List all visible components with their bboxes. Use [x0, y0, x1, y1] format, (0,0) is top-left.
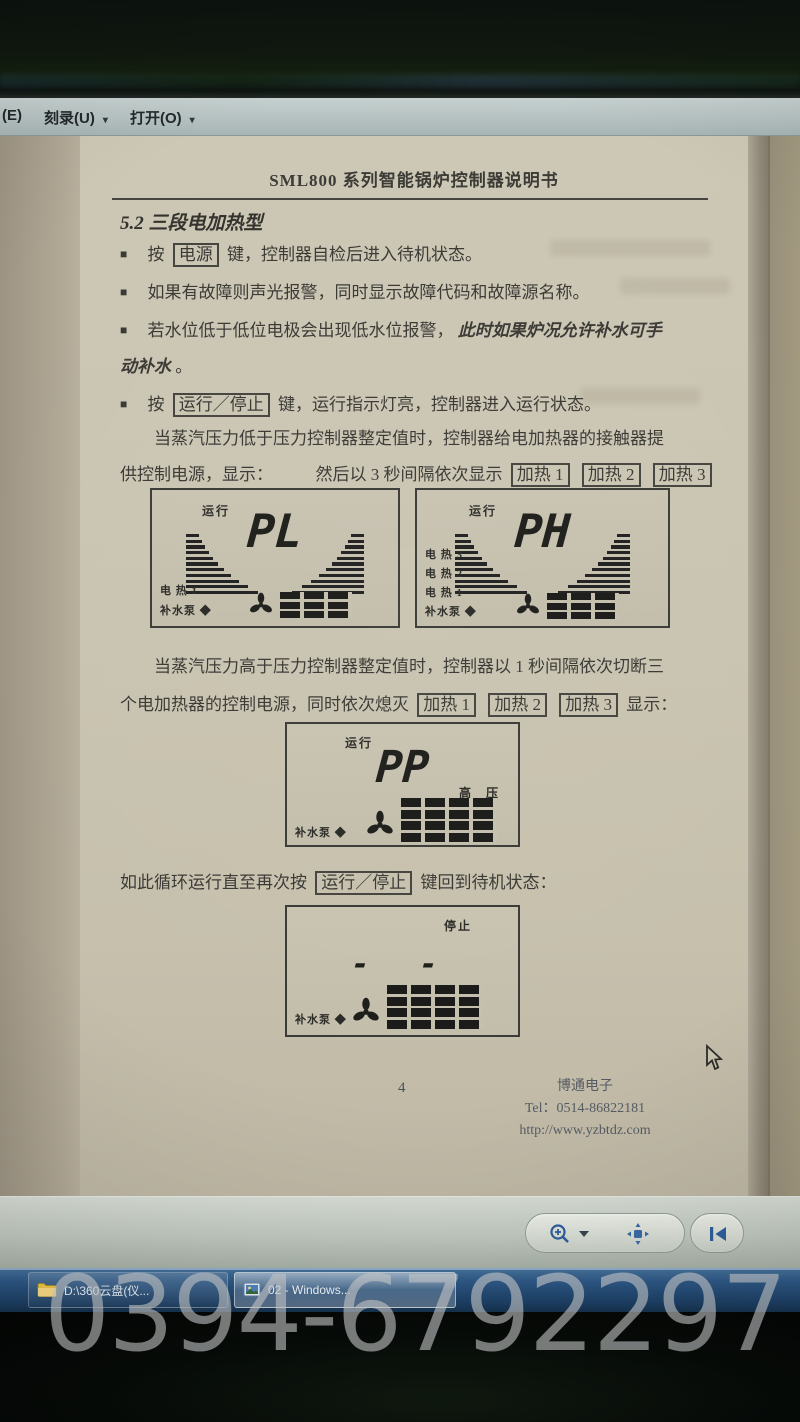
photo-viewer-canvas: SML800 系列智能锅炉控制器说明书 5.2 三段电加热型 ■ 按 电源 键，… — [0, 136, 800, 1196]
bullet-item-fault: ■ 如果有故障则声光报警，同时显示故障代码和故障源名称。 — [120, 278, 590, 303]
menu-bar: (E) 刻录(U)▾ 打开(O)▾ — [0, 98, 800, 136]
chevron-down-icon: ▾ — [190, 115, 195, 126]
key-power: 电源 — [173, 243, 219, 267]
lcd-bargraph-right — [292, 534, 364, 594]
bullet-marker: ■ — [120, 323, 127, 338]
lcd-panel-pl: 运行 PL 电 热 1 补水泵 ◆ — [150, 488, 400, 628]
lcd-label-feed-pump: 补水泵 ◆ — [295, 824, 347, 840]
lcd-panel-ph: 运行 PH 电 热 3 电 热 2 电 热 1 补水泵 ◆ — [415, 488, 670, 628]
title-rule — [112, 198, 708, 200]
lcd-label-feed-pump: 补水泵 ◆ — [295, 1011, 347, 1027]
paragraph-text: 显示： — [626, 695, 677, 714]
lcd-burner-bars-icon — [401, 798, 497, 844]
key-heat3: 加热 3 — [559, 693, 618, 717]
paragraph-text: 供控制电源，显示： — [120, 465, 273, 484]
page-bleed-through — [620, 278, 730, 294]
paragraph-low-pressure-line2: 供控制电源，显示： 然后以 3 秒间隔依次显示 加热 1 加热 2 加热 3 — [120, 460, 716, 487]
key-run-stop: 运行／停止 — [315, 871, 412, 895]
lcd-label-heater1: 电 热 1 — [425, 584, 463, 600]
fan-icon — [515, 593, 541, 619]
paragraph-low-pressure-line1: 当蒸汽压力低于压力控制器整定值时，控制器给电加热器的接触器提 — [154, 424, 664, 449]
fan-icon — [248, 592, 274, 618]
lcd-status-stop: 停止 — [444, 917, 472, 934]
menu-item-burn-label: 刻录(U) — [44, 110, 95, 127]
company-tel: Tel：0514-86822181 — [440, 1098, 730, 1120]
previous-image-icon — [707, 1223, 729, 1245]
bullet-text: 按 — [148, 245, 165, 264]
bullet-text-italic: 此时如果炉况允许补水可手 — [458, 321, 662, 340]
lcd-label-heater3: 电 热 3 — [425, 546, 463, 562]
zoom-controls-group — [525, 1213, 685, 1253]
paragraph-text: 键回到待机状态： — [421, 873, 557, 892]
footer-company-block: 博通电子 Tel：0514-86822181 http://www.yzbtdz… — [440, 1076, 730, 1142]
key-heat2: 加热 2 — [488, 693, 547, 717]
lcd-burner-bars-icon — [547, 593, 619, 622]
company-name: 博通电子 — [440, 1076, 730, 1098]
lcd-burner-bars-icon — [387, 985, 483, 1031]
paragraph-text: 然后以 3 秒间隔依次显示 — [316, 465, 503, 484]
paper-edge-highlight — [748, 136, 768, 1196]
bullet-item-low-water-line2: 动补水 。 — [120, 352, 192, 377]
lcd-panel-pp: 运行 PP 高 压 补水泵 ◆ — [285, 722, 520, 847]
key-heat2: 加热 2 — [582, 463, 641, 487]
mouse-cursor — [702, 1044, 724, 1072]
chevron-down-icon: ▾ — [103, 115, 108, 126]
bullet-marker: ■ — [120, 397, 127, 412]
bullet-marker: ■ — [120, 285, 127, 300]
menu-item-partial[interactable]: (E) — [2, 107, 22, 124]
section-heading: 5.2 三段电加热型 — [120, 208, 263, 235]
bullet-item-power: ■ 按 电源 键，控制器自检后进入待机状态。 — [120, 240, 482, 267]
lcd-label-heater1: 电 热 1 — [160, 582, 198, 598]
fan-icon — [365, 810, 395, 840]
actual-size-icon[interactable] — [626, 1222, 650, 1246]
bullet-text: 如果有故障则声光报警，同时显示故障代码和故障源名称。 — [148, 283, 590, 302]
key-heat3: 加热 3 — [653, 463, 712, 487]
paragraph-text: 如此循环运行直至再次按 — [120, 873, 307, 892]
bullet-text: 。 — [175, 357, 192, 376]
bullet-text: 键，运行指示灯亮，控制器进入运行状态。 — [278, 395, 601, 414]
chevron-down-icon[interactable] — [578, 1230, 590, 1238]
menu-item-open[interactable]: 打开(O)▾ — [130, 107, 195, 128]
monitor-bezel — [0, 0, 800, 98]
watermark-phone-number: 0394-6792297 — [44, 1262, 785, 1366]
key-run-stop: 运行／停止 — [173, 393, 270, 417]
paragraph-loop: 如此循环运行直至再次按 运行／停止 键回到待机状态： — [120, 868, 557, 895]
bullet-item-low-water: ■ 若水位低于低位电极会出现低水位报警， 此时如果炉况允许补水可手 — [120, 316, 662, 341]
lcd-value-standby: - - — [286, 947, 519, 982]
page-number: 4 — [398, 1080, 406, 1097]
magnifier-plus-icon[interactable] — [548, 1222, 572, 1246]
bullet-text: 键，控制器自检后进入待机状态。 — [227, 245, 482, 264]
fan-icon — [351, 997, 381, 1027]
bullet-text: 若水位低于低位电极会出现低水位报警， — [148, 321, 454, 340]
lcd-bargraph-right — [558, 534, 630, 594]
lcd-bargraph-left — [455, 534, 527, 594]
paragraph-high-pressure-line1: 当蒸汽压力高于压力控制器整定值时，控制器以 1 秒间隔依次切断三 — [154, 652, 664, 677]
paragraph-text: 个电加热器的控制电源，同时依次熄灭 — [120, 695, 409, 714]
menu-item-burn[interactable]: 刻录(U)▾ — [44, 107, 108, 128]
document-title: SML800 系列智能锅炉控制器说明书 — [80, 166, 748, 191]
document-page: SML800 系列智能锅炉控制器说明书 5.2 三段电加热型 ■ 按 电源 键，… — [80, 136, 748, 1196]
bullet-item-run-stop: ■ 按 运行／停止 键，运行指示灯亮，控制器进入运行状态。 — [120, 390, 601, 417]
bullet-marker: ■ — [120, 247, 127, 262]
paragraph-high-pressure-line2: 个电加热器的控制电源，同时依次熄灭 加热 1 加热 2 加热 3 显示： — [120, 690, 677, 717]
lcd-burner-bars-icon — [280, 592, 352, 621]
lcd-label-feed-pump: 补水泵 ◆ — [425, 603, 477, 619]
previous-image-button[interactable] — [690, 1213, 744, 1253]
page-bleed-through — [550, 240, 710, 256]
key-heat1: 加热 1 — [417, 693, 476, 717]
key-heat1: 加热 1 — [511, 463, 570, 487]
lcd-panel-standby: 停止 - - 补水泵 ◆ — [285, 905, 520, 1037]
bullet-text-italic: 动补水 — [120, 357, 171, 376]
monitor-photo: (E) 刻录(U)▾ 打开(O)▾ SML800 系列智能锅炉控制器说明书 5.… — [0, 0, 800, 1422]
company-url: http://www.yzbtdz.com — [440, 1120, 730, 1142]
menu-item-open-label: 打开(O) — [130, 110, 182, 127]
paper-crease — [768, 136, 770, 1196]
lcd-label-feed-pump: 补水泵 ◆ — [160, 602, 212, 618]
bullet-text: 按 — [148, 395, 165, 414]
lcd-label-heater2: 电 热 2 — [425, 565, 463, 581]
